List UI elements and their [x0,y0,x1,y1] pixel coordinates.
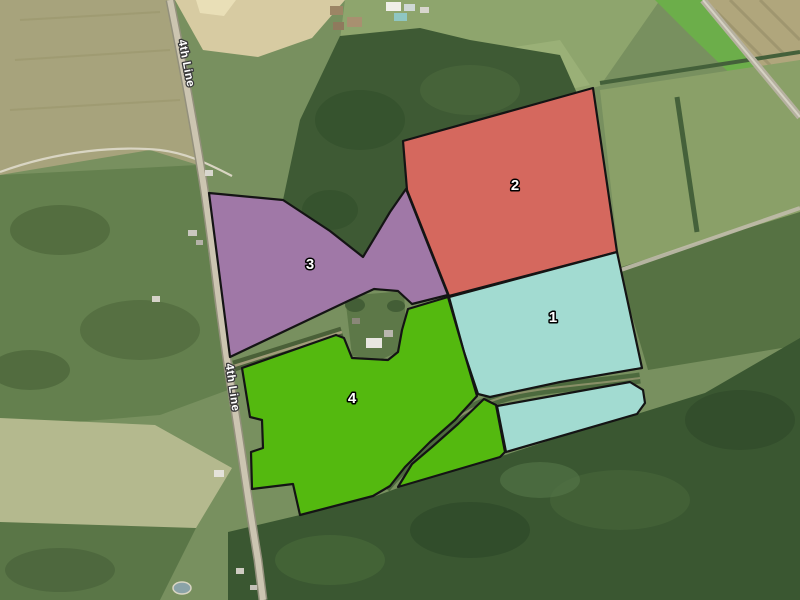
satellite-background [0,0,800,600]
parcel-4-label: 4 [348,390,357,407]
map-viewport[interactable]: 4th Line 4th Line 1 2 3 4 [0,0,800,600]
parcel-1-label: 1 [549,309,557,326]
parcel-3-label: 3 [306,256,314,273]
parcel-2-label: 2 [511,177,519,194]
map-canvas: 4th Line 4th Line 1 2 3 4 [0,0,800,600]
